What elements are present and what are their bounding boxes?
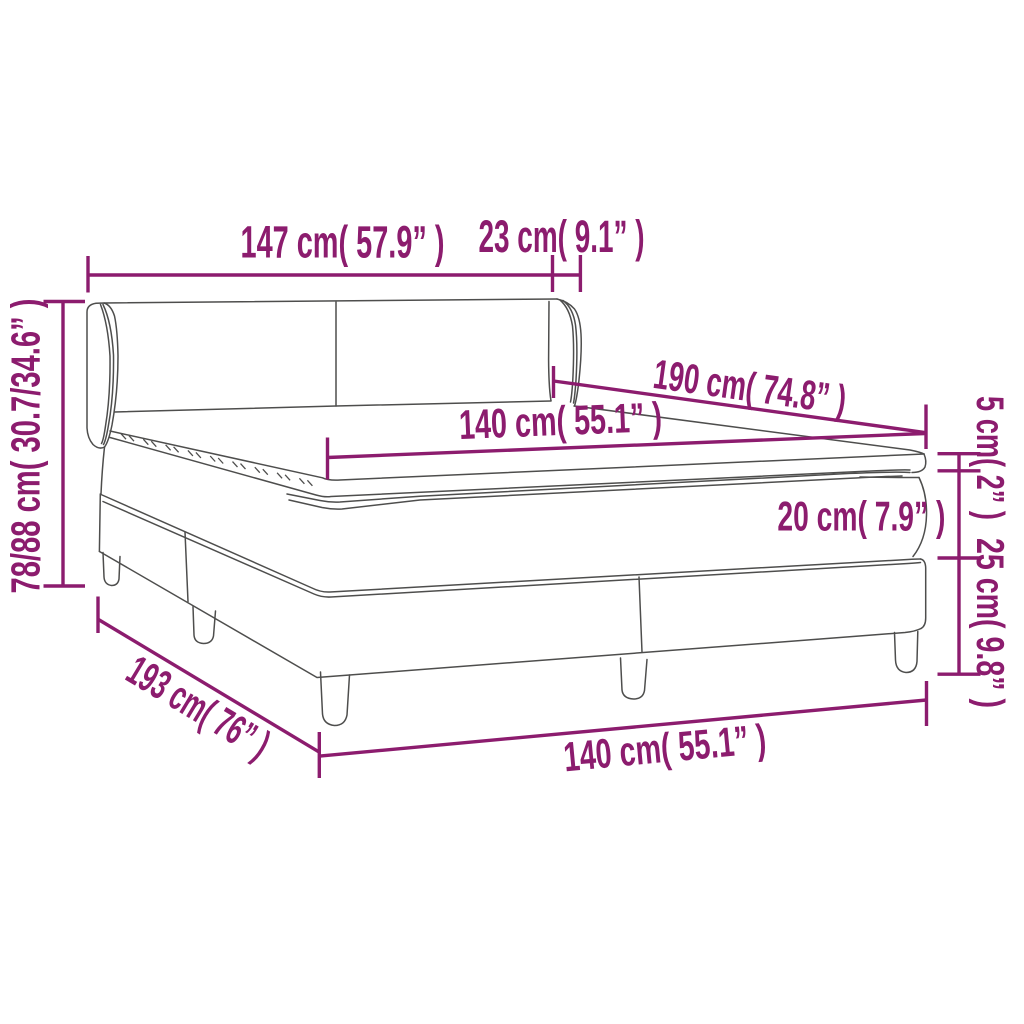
- svg-text:147 cm( 57.9” ): 147 cm( 57.9” ): [241, 217, 445, 268]
- svg-text:5 cm( 2” ): 5 cm( 2” ): [968, 396, 1011, 520]
- svg-text:23 cm( 9.1” ): 23 cm( 9.1” ): [479, 211, 645, 262]
- svg-text:78/88 cm( 30.7/34.6” ): 78/88 cm( 30.7/34.6” ): [3, 299, 49, 594]
- svg-text:25 cm( 9.8” ): 25 cm( 9.8” ): [968, 538, 1011, 708]
- svg-text:20 cm( 7.9” ): 20 cm( 7.9” ): [777, 492, 945, 539]
- svg-text:140 cm( 55.1” ): 140 cm( 55.1” ): [458, 393, 663, 448]
